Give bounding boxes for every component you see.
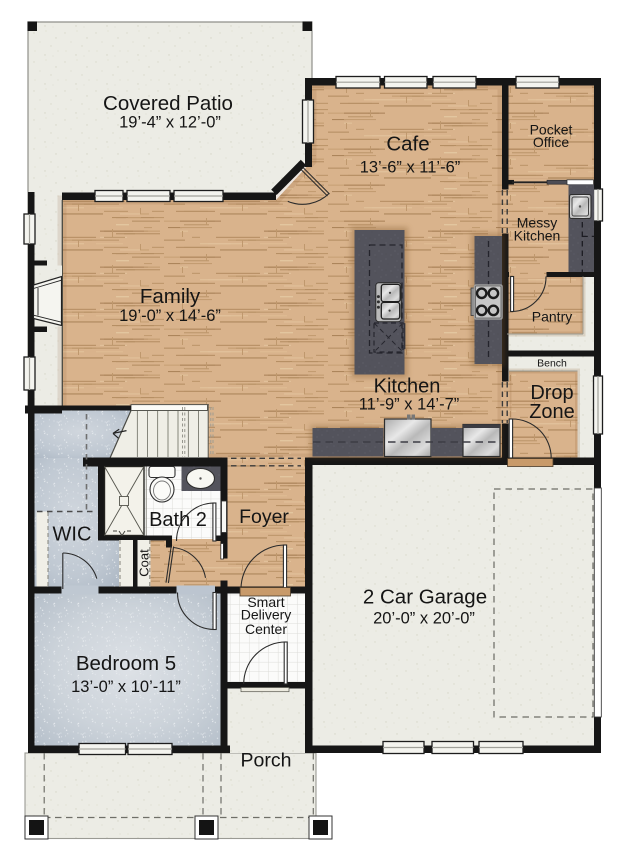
svg-text:Zone: Zone	[529, 401, 575, 423]
svg-text:13’-6” x 11’-6”: 13’-6” x 11’-6”	[360, 159, 461, 177]
svg-text:20’-0” x 20’-0”: 20’-0” x 20’-0”	[373, 610, 475, 628]
svg-text:19’-0” x 14’-6”: 19’-0” x 14’-6”	[119, 307, 221, 325]
svg-text:Foyer: Foyer	[239, 506, 289, 528]
svg-text:11’-9” x 14’-7”: 11’-9” x 14’-7”	[359, 396, 460, 414]
svg-text:Pantry: Pantry	[532, 309, 572, 325]
svg-text:13’-0” x 10’-11”: 13’-0” x 10’-11”	[71, 678, 181, 696]
svg-text:Coat: Coat	[137, 549, 152, 577]
svg-text:Bath 2: Bath 2	[149, 509, 207, 531]
svg-text:Cafe: Cafe	[386, 133, 429, 156]
svg-text:Kitchen: Kitchen	[514, 228, 561, 244]
svg-text:Center: Center	[245, 621, 287, 637]
svg-text:2 Car Garage: 2 Car Garage	[363, 586, 487, 609]
svg-text:19’-4” x 12’-0”: 19’-4” x 12’-0”	[119, 114, 221, 132]
svg-text:Bedroom 5: Bedroom 5	[76, 652, 176, 675]
svg-text:Bench: Bench	[537, 358, 567, 370]
svg-text:Kitchen: Kitchen	[374, 376, 441, 398]
svg-text:WIC: WIC	[53, 524, 92, 546]
svg-text:Office: Office	[533, 134, 570, 150]
svg-text:Porch: Porch	[241, 750, 292, 772]
svg-text:Family: Family	[140, 285, 201, 308]
svg-text:Covered Patio: Covered Patio	[103, 92, 233, 115]
